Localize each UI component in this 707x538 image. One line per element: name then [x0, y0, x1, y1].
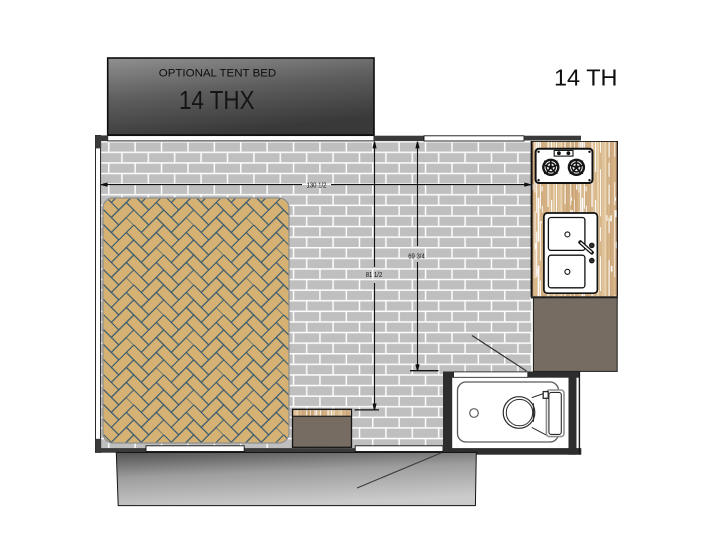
svg-text:81 1/2: 81 1/2 [366, 272, 383, 279]
svg-text:14 THX: 14 THX [179, 85, 255, 115]
svg-text:OPTIONAL TENT BED: OPTIONAL TENT BED [159, 68, 277, 80]
svg-text:14 TH: 14 TH [554, 65, 618, 91]
svg-text:130 1/2: 130 1/2 [307, 182, 327, 189]
svg-text:69 3/4: 69 3/4 [408, 253, 425, 260]
